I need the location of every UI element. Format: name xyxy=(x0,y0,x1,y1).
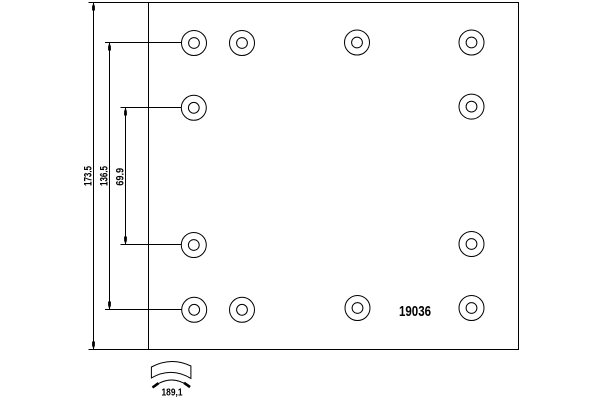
svg-text:189,1: 189,1 xyxy=(162,388,183,399)
svg-text:69.9: 69.9 xyxy=(114,168,126,186)
svg-text:19036: 19036 xyxy=(399,303,431,320)
svg-text:136.5: 136.5 xyxy=(99,166,111,186)
svg-text:173.5: 173.5 xyxy=(82,166,94,186)
